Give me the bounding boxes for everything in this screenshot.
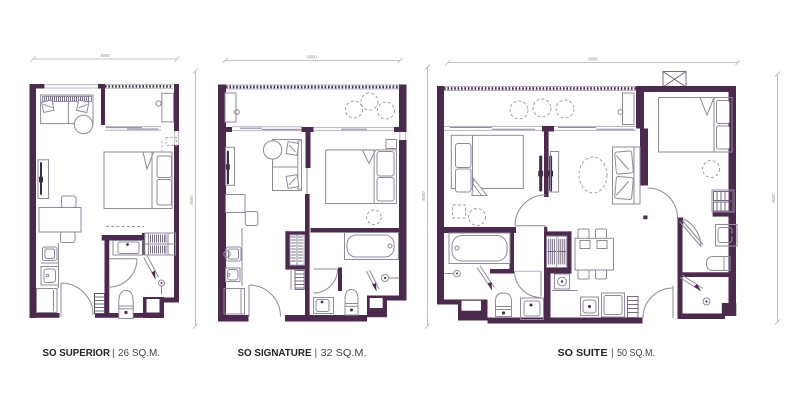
- svg-text:|: |: [315, 348, 318, 359]
- svg-text:50 SQ.M.: 50 SQ.M.: [617, 348, 655, 359]
- svg-text:SO SUPERIOR: SO SUPERIOR: [43, 348, 111, 359]
- svg-text:8400: 8400: [771, 193, 776, 203]
- svg-text:|: |: [112, 348, 115, 359]
- svg-text:8400: 8400: [421, 191, 426, 201]
- svg-text:4000: 4000: [100, 53, 110, 58]
- svg-text:SO SIGNATURE: SO SIGNATURE: [238, 348, 312, 359]
- svg-text:26 SQ.M.: 26 SQ.M.: [118, 348, 160, 359]
- svg-text:32 SQ.M.: 32 SQ.M.: [321, 348, 367, 359]
- svg-text:8400: 8400: [189, 195, 194, 205]
- svg-text:|: |: [611, 348, 614, 359]
- svg-text:SO SUITE: SO SUITE: [558, 348, 608, 359]
- svg-text:5000: 5000: [307, 55, 317, 60]
- svg-text:8045: 8045: [588, 57, 598, 62]
